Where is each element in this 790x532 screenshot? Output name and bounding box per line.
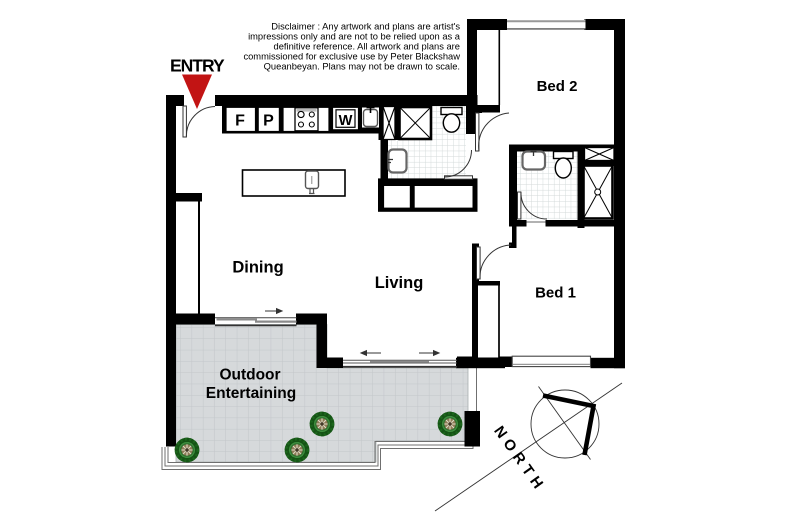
svg-text:F: F <box>235 113 245 130</box>
svg-text:Dining: Dining <box>232 259 283 277</box>
svg-text:Living: Living <box>375 274 424 292</box>
svg-text:Queanbeyan. Plans may not be d: Queanbeyan. Plans may not be drawn to sc… <box>264 62 460 72</box>
svg-text:ENTRY: ENTRY <box>170 56 225 76</box>
svg-text:Bed 1: Bed 1 <box>535 285 576 302</box>
svg-text:Entertaining: Entertaining <box>206 385 296 402</box>
svg-text:W: W <box>339 113 353 129</box>
svg-text:P: P <box>263 113 274 130</box>
svg-text:Disclaimer : Any artwork and p: Disclaimer : Any artwork and plans are a… <box>271 22 460 32</box>
svg-text:commissioned for exclusive use: commissioned for exclusive use by Peter … <box>243 52 460 62</box>
svg-text:Bed 2: Bed 2 <box>537 78 578 95</box>
svg-text:impressions only and are not t: impressions only and are not to be relie… <box>248 32 461 42</box>
svg-text:Outdoor: Outdoor <box>219 367 280 384</box>
svg-text:definitive reference. All artw: definitive reference. All artwork and pl… <box>274 42 460 52</box>
